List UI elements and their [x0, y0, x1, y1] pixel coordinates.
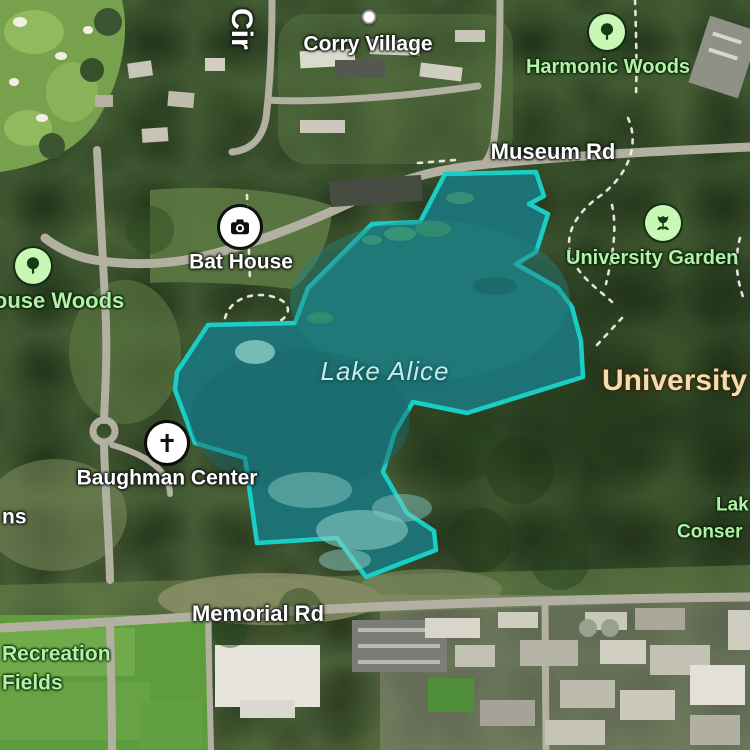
- poi-label-university-garden[interactable]: University Garden: [566, 248, 738, 268]
- tree-icon: [596, 21, 618, 43]
- house-woods-marker[interactable]: [15, 248, 51, 284]
- street-label-cir: Cir: [226, 8, 256, 50]
- poi-label-bat-house[interactable]: Bat House: [189, 252, 293, 273]
- poi-label-corry-village[interactable]: Corry Village: [303, 34, 432, 55]
- baughman-center-marker[interactable]: [147, 423, 187, 463]
- tree-icon: [22, 255, 44, 277]
- label-fragment-ns: ns: [2, 507, 27, 528]
- golf-course: [0, 0, 125, 172]
- road-fields-edge: [208, 618, 211, 750]
- cross-icon: [155, 431, 179, 455]
- label-recreation-fields-line1[interactable]: Recreation: [2, 644, 111, 665]
- water-label-lake-alice[interactable]: Lake Alice: [321, 358, 450, 384]
- area-label-university[interactable]: University: [602, 366, 747, 396]
- corry-village-dot-marker[interactable]: [362, 10, 377, 25]
- bat-house-marker[interactable]: [220, 207, 260, 247]
- road-label-museum-rd: Museum Rd: [491, 141, 616, 163]
- label-lake-conservation-line2[interactable]: Conser: [677, 523, 742, 542]
- label-recreation-fields-line2[interactable]: Fields: [2, 673, 63, 694]
- poi-label-baughman-center[interactable]: Baughman Center: [77, 468, 258, 489]
- road-label-memorial-rd: Memorial Rd: [192, 603, 324, 625]
- roundabout: [93, 420, 115, 442]
- satellite-map-canvas[interactable]: Cir Corry Village Harmonic Woods Museum …: [0, 0, 750, 750]
- label-lake-conservation-line1[interactable]: Lak: [716, 496, 749, 515]
- poi-label-harmonic-woods[interactable]: Harmonic Woods: [526, 57, 690, 77]
- flower-icon: [652, 212, 674, 234]
- camera-icon: [228, 215, 252, 239]
- university-garden-marker[interactable]: [645, 205, 681, 241]
- poi-label-house-woods[interactable]: House Woods: [0, 290, 124, 312]
- harmonic-woods-marker[interactable]: [589, 14, 625, 50]
